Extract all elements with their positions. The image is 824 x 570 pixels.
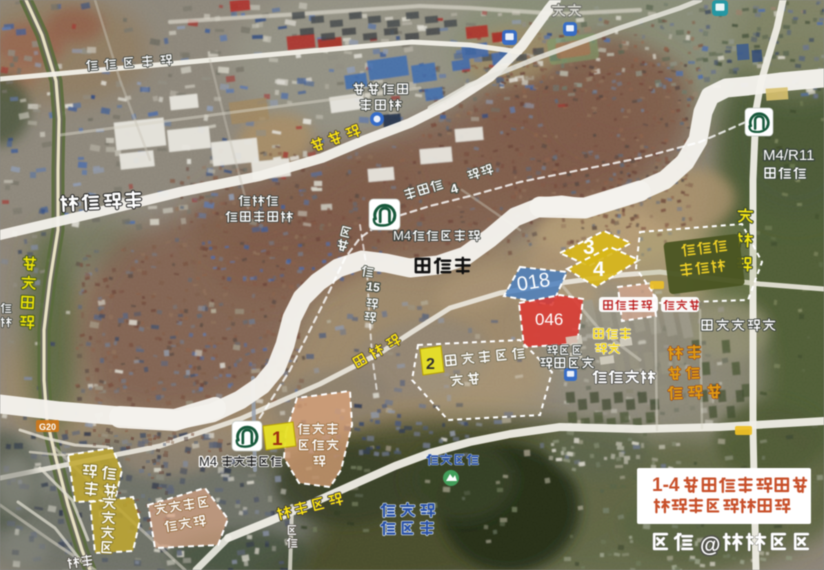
svg-text:2: 2 [426,356,435,373]
svg-text:15: 15 [366,279,381,295]
svg-text:046: 046 [535,310,563,329]
svg-text:M4: M4 [393,228,411,243]
svg-text:1: 1 [272,429,283,450]
svg-text:3: 3 [583,236,595,259]
svg-text:G20: G20 [39,422,56,432]
svg-text:1-4: 1-4 [652,475,680,496]
svg-text:@: @ [700,534,720,557]
svg-text:M4/R11: M4/R11 [763,147,814,164]
svg-text:4: 4 [593,258,605,281]
svg-text:M4: M4 [199,454,217,469]
